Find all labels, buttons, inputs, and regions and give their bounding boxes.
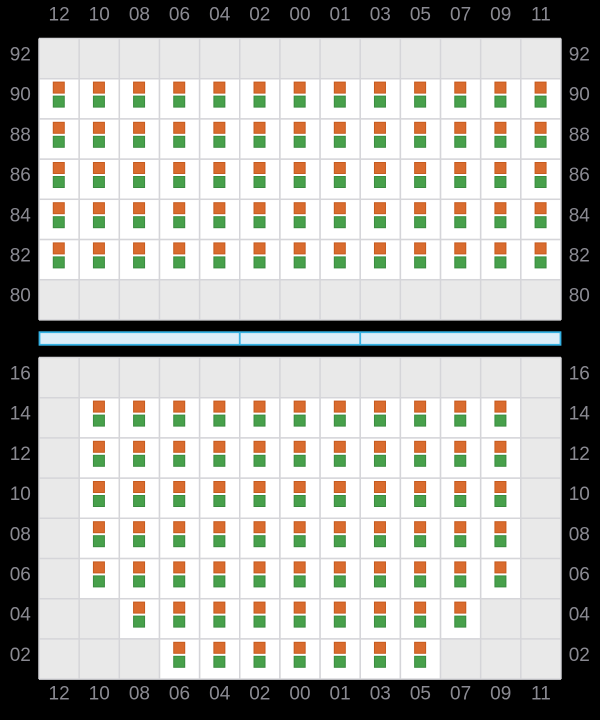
- svg-text:00: 00: [289, 5, 310, 26]
- svg-text:12: 12: [10, 444, 31, 465]
- svg-text:08: 08: [129, 5, 150, 26]
- svg-text:08: 08: [129, 684, 150, 705]
- svg-text:82: 82: [569, 246, 590, 267]
- svg-text:03: 03: [370, 684, 391, 705]
- svg-text:92: 92: [569, 45, 590, 66]
- svg-text:00: 00: [289, 684, 310, 705]
- svg-text:06: 06: [569, 565, 590, 586]
- svg-text:03: 03: [370, 5, 391, 26]
- svg-text:80: 80: [10, 286, 31, 307]
- svg-text:01: 01: [330, 5, 351, 26]
- svg-text:07: 07: [450, 684, 471, 705]
- svg-text:90: 90: [569, 85, 590, 106]
- svg-text:02: 02: [249, 684, 270, 705]
- svg-text:09: 09: [490, 684, 511, 705]
- svg-text:04: 04: [10, 605, 32, 626]
- svg-text:10: 10: [89, 684, 110, 705]
- svg-text:06: 06: [169, 684, 190, 705]
- svg-text:80: 80: [569, 286, 590, 307]
- svg-text:90: 90: [10, 85, 31, 106]
- svg-text:04: 04: [569, 605, 591, 626]
- svg-text:14: 14: [10, 404, 32, 425]
- svg-text:01: 01: [330, 684, 351, 705]
- svg-text:11: 11: [531, 5, 551, 26]
- svg-text:02: 02: [249, 5, 270, 26]
- svg-text:84: 84: [569, 205, 591, 226]
- svg-text:92: 92: [10, 45, 31, 66]
- svg-text:12: 12: [569, 444, 590, 465]
- svg-text:02: 02: [10, 645, 31, 666]
- svg-text:04: 04: [209, 684, 231, 705]
- svg-text:06: 06: [10, 565, 31, 586]
- svg-text:10: 10: [569, 484, 590, 505]
- svg-text:08: 08: [569, 524, 590, 545]
- svg-text:11: 11: [531, 684, 551, 705]
- svg-text:10: 10: [89, 5, 110, 26]
- svg-text:05: 05: [410, 5, 431, 26]
- svg-text:04: 04: [209, 5, 231, 26]
- svg-text:88: 88: [569, 125, 590, 146]
- svg-text:86: 86: [569, 165, 590, 186]
- svg-text:09: 09: [490, 5, 511, 26]
- svg-text:12: 12: [49, 5, 70, 26]
- svg-text:02: 02: [569, 645, 590, 666]
- svg-text:06: 06: [169, 5, 190, 26]
- svg-text:16: 16: [10, 364, 31, 385]
- svg-text:07: 07: [450, 5, 471, 26]
- svg-text:08: 08: [10, 524, 31, 545]
- svg-text:84: 84: [10, 205, 32, 226]
- svg-text:14: 14: [569, 404, 591, 425]
- svg-text:10: 10: [10, 484, 31, 505]
- svg-text:12: 12: [49, 684, 70, 705]
- svg-text:16: 16: [569, 364, 590, 385]
- svg-text:88: 88: [10, 125, 31, 146]
- svg-text:05: 05: [410, 684, 431, 705]
- svg-text:82: 82: [10, 246, 31, 267]
- svg-text:86: 86: [10, 165, 31, 186]
